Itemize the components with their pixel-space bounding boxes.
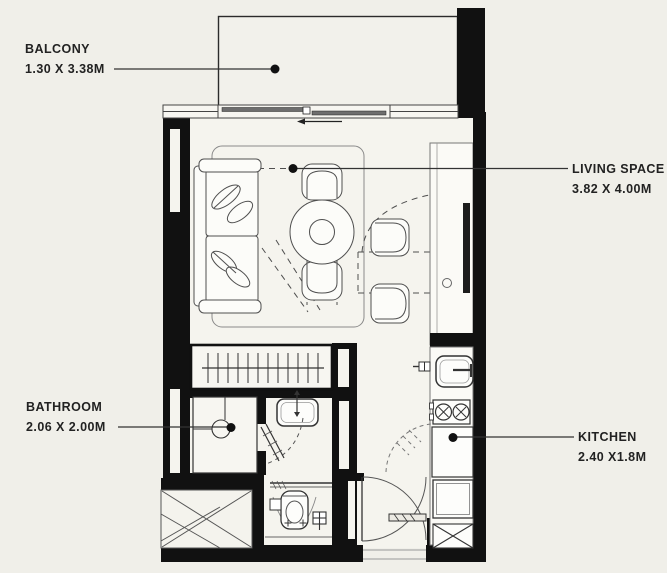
chair-south <box>302 262 342 300</box>
room-label-bathroom: BATHROOM 2.06 X 2.00M <box>26 397 106 437</box>
wall-kitchen-top <box>430 333 475 347</box>
room-dimensions: 3.82 X 4.00M <box>572 179 665 199</box>
table-top <box>290 200 354 264</box>
room-name: KITCHEN <box>578 427 646 447</box>
sofa <box>194 159 261 313</box>
floor-plan-drawing <box>0 0 667 573</box>
kitchen-counter-strip <box>430 143 473 345</box>
balcony-room <box>219 17 458 106</box>
chair-north <box>302 164 342 200</box>
stove <box>430 400 471 424</box>
room-dimensions: 2.40 X1.8M <box>578 447 646 467</box>
entry-door-hinge <box>356 473 364 481</box>
living-leader-dot <box>289 164 298 173</box>
room-dimensions: 2.06 X 2.00M <box>26 417 106 437</box>
chair-east-1 <box>371 219 409 256</box>
wall-balcony-right <box>457 8 485 118</box>
kitchen-leader-dot <box>449 433 458 442</box>
room-label-balcony: BALCONY 1.30 X 3.38M <box>25 39 105 79</box>
wall-door-stub-top <box>257 397 266 424</box>
floor-plan-page: BALCONY 1.30 X 3.38M LIVING SPACE 3.82 X… <box>0 0 667 573</box>
shaft-box <box>161 490 252 548</box>
balcony-leader-dot <box>271 65 280 74</box>
room-dimensions: 1.30 X 3.38M <box>25 59 105 79</box>
room-name: BALCONY <box>25 39 105 59</box>
room-name: LIVING SPACE <box>572 159 665 179</box>
wall-door-stub-bottom <box>257 451 266 475</box>
wall-above-shaft <box>161 478 252 491</box>
bathroom-leader-dot <box>227 423 236 432</box>
wall-bottom-left <box>161 547 252 562</box>
shower <box>193 397 257 473</box>
chair-east-2 <box>371 284 409 323</box>
kitchen-cabinet <box>433 480 473 518</box>
room-label-kitchen: KITCHEN 2.40 X1.8M <box>578 427 646 467</box>
countertop-edge <box>463 203 470 293</box>
wardrobe <box>191 345 332 389</box>
room-name: BATHROOM <box>26 397 106 417</box>
wall-bottom-bathroom <box>252 545 363 562</box>
room-label-living-space: LIVING SPACE 3.82 X 4.00M <box>572 159 665 199</box>
bathroom-bin <box>270 499 281 510</box>
kitchen-shaft-box <box>433 524 473 548</box>
